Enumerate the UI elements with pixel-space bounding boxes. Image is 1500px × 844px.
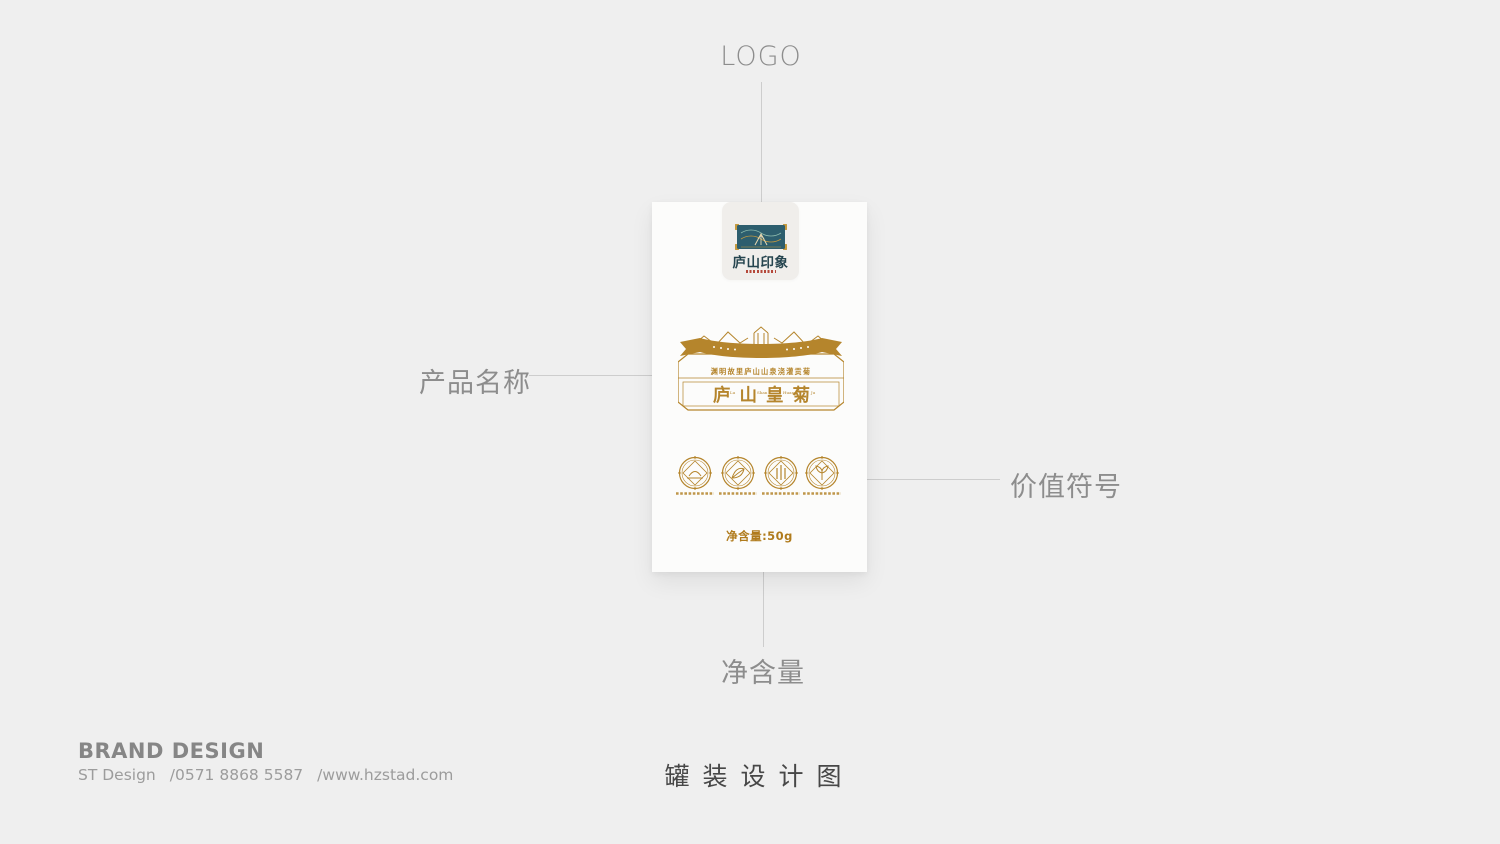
logo-tab: 庐山印象	[722, 202, 799, 280]
value-symbols-callout-label: 价值符号	[1010, 465, 1122, 504]
footer-caption: 罐装设计图	[603, 757, 903, 793]
footer-phone: /0571 8868 5587	[170, 766, 303, 784]
product-name-plate: 渊明故里庐山山泉浇灌贡菊 庐山皇菊 Lu Shan Huang Ju	[678, 326, 844, 412]
footer-studio: ST Design	[78, 766, 156, 784]
svg-text:Lu: Lu	[730, 390, 736, 395]
value-symbols-callout-line	[849, 479, 1000, 480]
net-weight-text: 净含量:50g	[652, 528, 867, 544]
svg-text:Shan: Shan	[757, 390, 768, 395]
sprout-seal-icon	[800, 456, 844, 500]
brand-seal-text-strip	[746, 270, 776, 273]
brand-calligraphy: 庐山印象	[722, 251, 799, 271]
svg-text:Ju: Ju	[810, 390, 816, 395]
net-weight-callout-label: 净含量	[663, 651, 863, 690]
arch-seal-icon	[673, 456, 717, 500]
logo-callout-line	[761, 82, 762, 222]
footer-brand-title: BRAND DESIGN	[78, 739, 264, 763]
ribbon-banner-icon	[680, 338, 842, 358]
product-title: 庐山皇菊	[713, 385, 819, 406]
footer-brand-subtitle: ST Design/0571 8868 5587/www.hzstad.com	[78, 766, 467, 784]
logo-callout-label: LOGO	[661, 41, 861, 72]
mountain-gate-emblem-icon	[734, 223, 788, 251]
svg-text:Huang: Huang	[783, 390, 797, 395]
product-name-callout-label: 产品名称	[419, 361, 531, 400]
footer-website: /www.hzstad.com	[317, 766, 453, 784]
name-plate-tagline: 渊明故里庐山山泉浇灌贡菊	[711, 367, 812, 376]
package-mockup: 庐山印象 渊明故里庐山山泉浇灌贡菊 庐山皇菊 Lu	[652, 202, 867, 572]
bamboo-seal-icon	[759, 456, 803, 500]
leaf-seal-icon	[716, 456, 760, 500]
